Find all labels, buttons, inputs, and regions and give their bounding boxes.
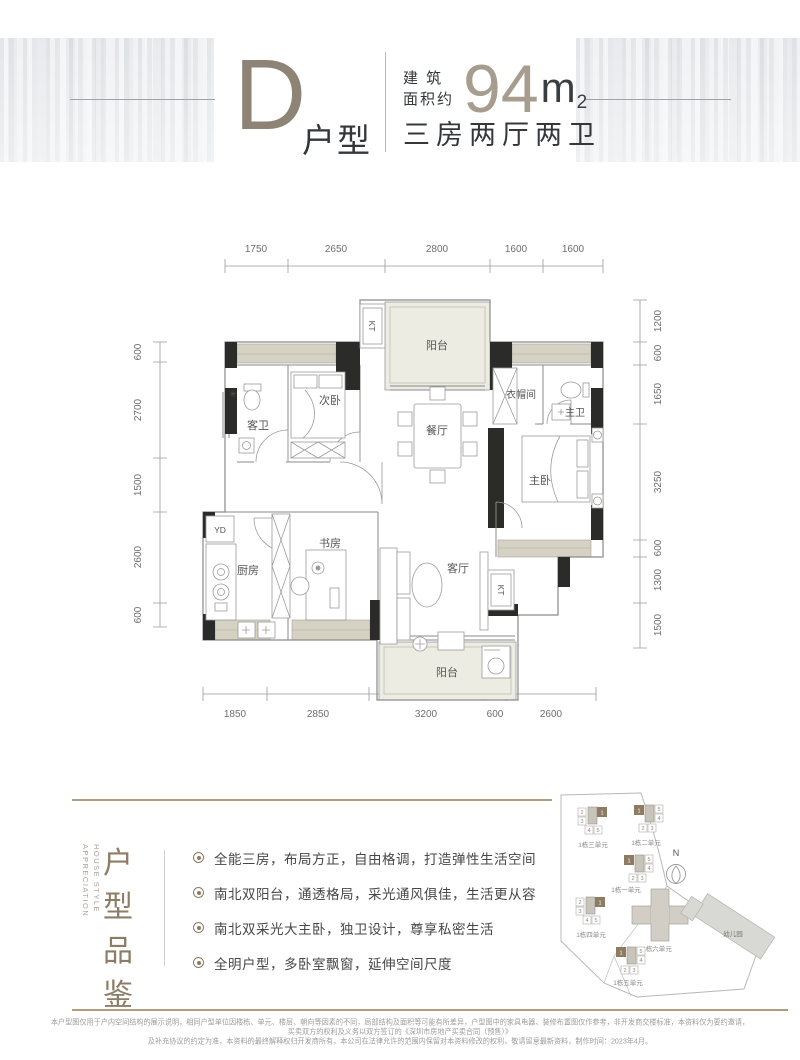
building-label: 1栋四单元 [576,930,606,939]
svg-text:2: 2 [580,810,583,816]
svg-text:1: 1 [600,811,603,817]
feature-text: 南北双阳台，通透格局，采光通风俱佳，生活更从容 [214,883,536,903]
dim-label: 2600 [133,545,144,568]
disclaimer: 本户型图仅用于户内空间结构的展示说明，相同户型单位因楼栋、单元、楼层、朝向等因素… [49,1018,752,1047]
svg-text:2: 2 [641,826,644,832]
dim-label: 2650 [325,244,348,255]
svg-text:2: 2 [578,900,581,906]
feature-item: 全能三房，布局方正，自由格调，打造弹性生活空间 [193,847,553,868]
svg-text:5: 5 [647,857,650,863]
section-subtitle-line2: APPRECIATION [80,844,91,954]
vent-symbol: ✳ [229,389,237,399]
bullet-icon [193,957,204,968]
svg-text:4: 4 [585,918,588,924]
svg-text:1: 1 [598,901,601,907]
room-label-study: 书房 [319,537,341,550]
compass-needle-icon [672,866,680,883]
dim-label: 1300 [653,568,664,591]
building-label: 1栋一单元 [611,885,641,894]
sitemap-building-cluster: 2 3 1 4 5 1栋三单元 [578,807,608,849]
dim-label: 2600 [540,709,563,720]
compass: N [667,848,686,884]
disclaimer-line1: 本户型图仅用于户内空间结构的展示说明，相同户型单位因楼栋、单元、楼层、朝向等因素… [49,1018,752,1037]
svg-text:4: 4 [647,866,650,872]
section-title-char: 品 [101,930,135,974]
section-title-char: 型 [101,886,135,930]
room-label-kitchen: 厨房 [237,564,259,577]
dim-label: 2800 [426,244,449,255]
yd-label: YD [214,525,226,535]
svg-text:4: 4 [657,816,660,822]
dim-label: 1750 [245,244,268,255]
sitemap-svg: N 2 3 1 4 5 1栋三单元 [535,782,797,1010]
building-label: 1栋六单元 [642,944,672,953]
svg-text:2: 2 [623,968,626,974]
dim-label: 600 [653,539,664,556]
kt-right-label: KT [496,585,506,596]
feature-item: 南北双采光大主卧，独卫设计，尊享私密生活 [193,917,553,938]
svg-text:5: 5 [596,828,599,834]
dim-label: 1500 [133,473,144,496]
dim-label: 3250 [653,470,664,493]
feature-list: 全能三房，布局方正，自由格调，打造弹性生活空间 南北双阳台，通透格局，采光通风俱… [193,847,553,987]
dim-label: 600 [133,606,144,623]
room-label-living: 客厅 [447,561,469,575]
svg-text:3: 3 [640,876,643,882]
feature-item: 全明户型，多卧室飘窗，延伸空间尺度 [193,952,553,973]
svg-text:5: 5 [657,807,660,813]
room-label-cloakroom: 衣帽间 [506,388,536,401]
svg-text:4: 4 [587,828,590,834]
feature-text: 南北双采光大主卧，独卫设计，尊享私密生活 [214,918,494,938]
building-label: 1栋三单元 [578,840,608,849]
svg-text:5: 5 [594,918,597,924]
kt-top-label: KT [367,321,377,332]
floorplan-svg: 1750 2650 2800 1600 1600 1850 2850 3200 … [100,228,700,740]
room-label-guest-bath: 客卫 [247,418,269,432]
svg-text:3: 3 [650,826,653,832]
room-label-bedroom2: 次卧 [319,393,341,407]
svg-text:5: 5 [639,949,642,955]
bullet-icon [193,922,204,933]
disclaimer-line2: 及补充协议的约定为准，本资料的最终解释权归开发商所有，本公司在法律允许的范围内保… [49,1037,752,1047]
dim-label: 1500 [653,613,664,636]
section-rule-top [72,799,552,801]
dim-label: 2700 [133,398,144,421]
dim-label: 600 [487,709,504,720]
kindergarten-building: 幼儿园 [681,887,775,963]
room-label-balcony-bottom: 阳台 [436,665,458,679]
header-stripes-left [0,38,214,162]
kindergarten-label: 幼儿园 [723,929,743,938]
dim-label: 1600 [562,244,585,255]
compass-circle [667,865,686,884]
room-label-master-bath: 主卫 [565,407,585,419]
sitemap-building-cluster: 2 3 1 4 5 1栋四单元 [576,897,606,939]
feature-item: 南北双阳台，通透格局，采光通风俱佳，生活更从容 [193,882,553,903]
sitemap-building-cluster: 1 5 4 2 3 1栋一单元 [611,855,653,894]
bullet-icon [193,852,204,863]
section-title-char: 鉴 [101,974,135,1018]
dim-label: 3200 [415,709,438,720]
unit-type-letter: D [234,44,306,146]
dim-label: 1650 [653,382,664,405]
header-divider [385,52,386,152]
svg-text:1: 1 [619,951,622,957]
building-label: 1栋二单元 [631,838,661,847]
area-exponent: 2 [577,92,588,113]
dim-label: 1600 [505,244,528,255]
dim-label: 2850 [307,709,330,720]
dim-label: 600 [133,343,144,360]
dim-label: 600 [653,344,664,361]
room-label-master-bedroom: 主卧 [529,474,551,487]
header-line-right [585,99,731,100]
svg-text:1: 1 [627,859,630,865]
svg-text:3: 3 [580,819,583,825]
svg-text:1: 1 [637,809,640,815]
area-value: 94 [463,58,539,120]
section-subtitle-en: HOUSE STYLE APPRECIATION [80,844,102,954]
compass-n-label: N [673,848,680,858]
sitemap-building-cluster: 1 5 4 2 3 1栋五单元 [613,947,645,987]
feature-text: 全能三房，布局方正，自由格调，打造弹性生活空间 [214,848,536,868]
section-title-char: 户 [101,842,135,886]
section-title-vertical: 户 型 品 鉴 [101,842,135,1018]
room-label-dining: 餐厅 [426,423,448,437]
area-label-line1: 建 筑 [403,68,454,89]
building-label: 1栋五单元 [613,978,643,987]
svg-text:2: 2 [631,876,634,882]
room-label-balcony-top: 阳台 [426,338,448,352]
area-label-line2: 面积约 [403,89,454,110]
feature-text: 全明户型，多卧室飘窗，延伸空间尺度 [214,953,452,973]
dim-label: 1200 [653,309,664,332]
area-labels: 建 筑 面积约 [403,68,454,110]
header-line-left [70,99,215,100]
section-divider [164,850,165,966]
layout-description: 三房两厅两卫 [403,113,601,152]
bullet-icon [193,887,204,898]
header-stripes-right [576,38,800,162]
floorplan-brochure-page: D 户型 建 筑 面积约 94 m2 三房两厅两卫 1750 2650 2800… [0,0,800,1060]
svg-text:3: 3 [578,909,581,915]
sitemap-building-cluster: 1 5 4 2 3 1栋二单元 [631,805,663,847]
svg-text:3: 3 [632,968,635,974]
svg-text:4: 4 [639,958,642,964]
dim-label: 1850 [224,709,247,720]
sitemap-building-cross: 1栋六单元 [632,889,688,953]
unit-type-suffix: 户型 [302,114,372,162]
